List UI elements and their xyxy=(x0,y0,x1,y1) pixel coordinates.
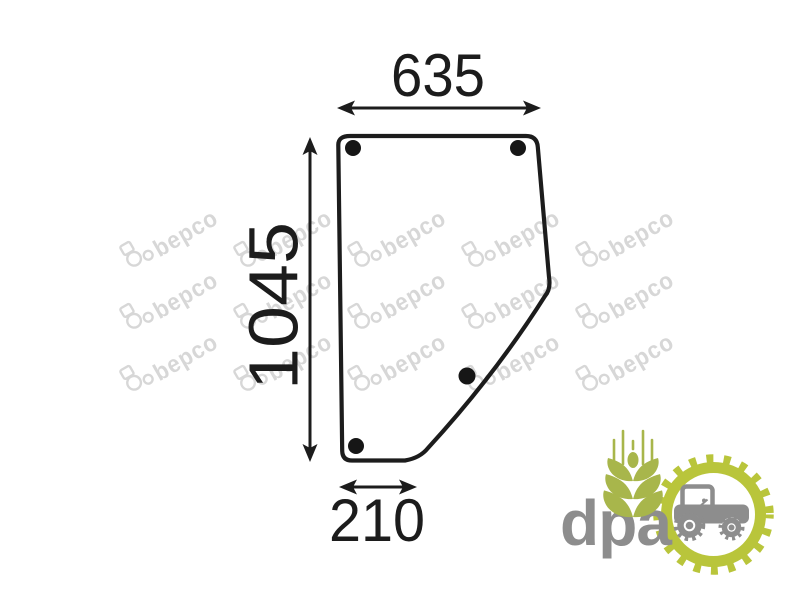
dimension-side-value: 1045 xyxy=(235,222,313,390)
watermark xyxy=(347,197,450,277)
mounting-hole xyxy=(345,140,361,156)
watermark xyxy=(347,321,450,401)
mounting-hole xyxy=(510,140,526,156)
dimension-bottom-width: 210 xyxy=(329,480,425,555)
watermark xyxy=(119,197,222,277)
dimension-top-value: 635 xyxy=(391,42,485,109)
watermark xyxy=(119,259,222,339)
dpa-logo: dpa xyxy=(560,431,770,571)
dimension-top-width: 635 xyxy=(337,42,541,116)
watermark xyxy=(575,197,678,277)
mounting-hole xyxy=(348,438,364,454)
tractor-icon xyxy=(674,487,749,540)
watermark xyxy=(575,259,678,339)
watermark xyxy=(575,321,678,401)
dimension-bottom-value: 210 xyxy=(329,487,425,554)
watermark xyxy=(119,321,222,401)
watermark-grid xyxy=(119,197,678,401)
technical-drawing-svg: bepco 635 1045 xyxy=(0,0,800,600)
dimension-side-height: 1045 xyxy=(235,137,318,462)
watermark xyxy=(347,259,450,339)
mounting-hole xyxy=(459,368,476,385)
product-technical-image: bepco 635 1045 xyxy=(0,0,800,600)
